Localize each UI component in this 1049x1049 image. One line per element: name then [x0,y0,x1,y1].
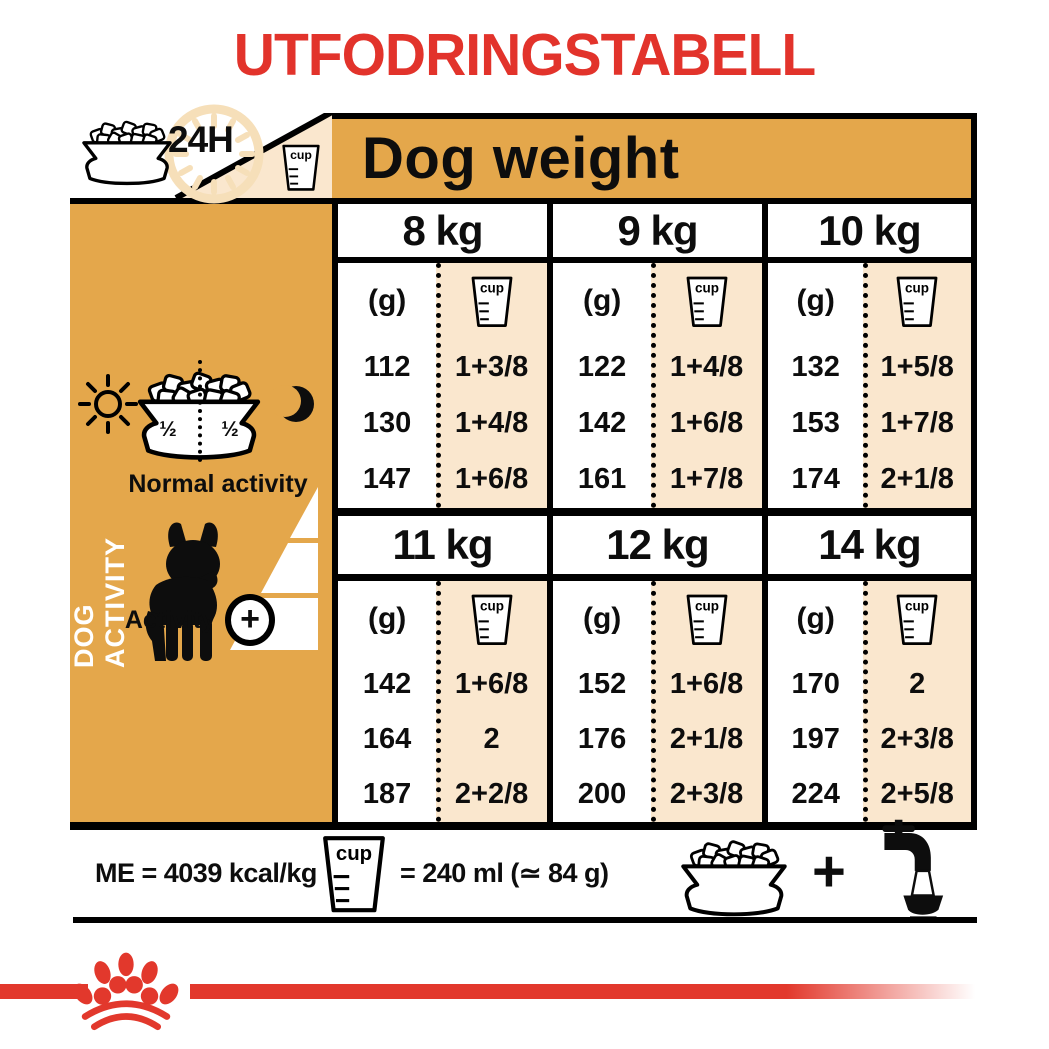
brand-stripe-right [190,984,975,999]
moon-icon [272,382,316,426]
cups-value: 1+6/8 [436,452,547,508]
cups-value: 2+5/8 [863,767,971,822]
royal-canin-crown-paw-logo [68,948,184,1038]
grams-value: 152 [553,657,651,712]
dog-silhouette-icon [130,517,250,665]
water-tap-icon [856,818,946,920]
measuring-cup-icon: cup [469,590,515,648]
grams-value: 161 [553,452,651,508]
hours-badge: 24H [168,119,233,161]
cups-value: 1+3/8 [436,339,547,395]
sun-icon [78,374,138,434]
cup-icon-label: cup [695,280,719,295]
page-title: UTFODRINGSTABELL [0,21,1049,90]
bowl-half-right-label: ½ [208,418,252,442]
cup-icon-label: cup [480,280,504,295]
cups-value: 2+3/8 [651,767,762,822]
feeding-table-page: UTFODRINGSTABELL [0,0,1049,1049]
grams-value: 187 [338,767,436,822]
cup-icon-label: cup [695,598,719,613]
weight-header: 8 kg [338,204,547,263]
grams-header: (g) [768,581,863,657]
grams-value: 142 [553,395,651,451]
cup-icon-label: cup [905,280,929,295]
weight-header: 14 kg [768,516,971,581]
measuring-cup-icon: cup [280,139,322,195]
measuring-cup-icon: cup [894,272,940,330]
plus-sign: + [812,838,846,905]
measuring-cup-icon: cup [469,272,515,330]
grams-value: 197 [768,712,863,767]
cups-value: 1+6/8 [436,657,547,712]
grams-value: 174 [768,452,863,508]
cups-value: 1+6/8 [651,395,762,451]
bowl-half-left-label: ½ [146,418,190,442]
weight-header: 11 kg [338,516,547,581]
feeding-table: 24H cup Dog weight ½ ½ [70,113,977,830]
measuring-cup-icon: cup [684,272,730,330]
grid-column-2: 9 kg (g) cup 122 1+4/8 142 1+6/8 161 1+ [547,204,762,822]
grams-value: 132 [768,339,863,395]
cups-value: 2+3/8 [863,712,971,767]
cups-value: 2 [436,712,547,767]
grid-column-1: 8 kg (g) cup 112 1+3/8 130 1+4/8 147 1+ [332,204,547,822]
data-block-8kg: (g) cup 112 1+3/8 130 1+4/8 147 1+6/8 [338,263,547,516]
cups-value: 1+4/8 [436,395,547,451]
measuring-cup-icon: cup [894,590,940,648]
cup-equivalence-text: = 240 ml (≃ 84 g) [400,858,608,889]
food-bowl-icon-footer [658,834,810,918]
grams-value: 142 [338,657,436,712]
table-corner: 24H cup [70,113,332,204]
weight-header: 9 kg [553,204,762,263]
data-block-9kg: (g) cup 122 1+4/8 142 1+6/8 161 1+7/8 [553,263,762,516]
grams-value: 224 [768,767,863,822]
cup-icon-label: cup [290,148,312,162]
grams-header: (g) [338,581,436,657]
grams-header: (g) [338,263,436,339]
grams-value: 153 [768,395,863,451]
data-block-11kg: (g) cup 142 1+6/8 164 2 187 2+2/8 [338,581,547,822]
grams-value: 176 [553,712,651,767]
me-kcal-text: ME = 4039 kcal/kg [95,858,317,889]
weight-grid: 8 kg (g) cup 112 1+3/8 130 1+4/8 147 1+ [332,204,977,830]
cups-value: 1+7/8 [651,452,762,508]
cup-icon-label: cup [336,843,372,865]
activity-label: Activity [110,606,230,635]
grid-column-3: 10 kg (g) cup 132 1+5/8 153 1+7/8 174 2 [762,204,977,822]
food-bowl-icon [78,115,176,187]
grams-header: (g) [553,263,651,339]
weight-header: 10 kg [768,204,971,263]
weight-header: 12 kg [553,516,762,581]
grams-value: 147 [338,452,436,508]
footer-divider-line [73,917,977,923]
data-block-12kg: (g) cup 152 1+6/8 176 2+1/8 200 2+3/8 [553,581,762,822]
data-block-14kg: (g) cup 170 2 197 2+3/8 224 2+5/8 [768,581,971,822]
grams-value: 122 [553,339,651,395]
bowl-split-dotted-line [198,360,202,462]
grams-value: 164 [338,712,436,767]
grams-value: 200 [553,767,651,822]
data-block-10kg: (g) cup 132 1+5/8 153 1+7/8 174 2+1/8 [768,263,971,516]
grams-header: (g) [768,263,863,339]
cup-icon-label: cup [905,598,929,613]
dog-weight-header: Dog weight [332,113,977,204]
dog-activity-sidebar: ½ ½ DOG ACTIVITY Normal activity [70,204,332,830]
grams-header: (g) [553,581,651,657]
grams-value: 130 [338,395,436,451]
measuring-cup-icon: cup [684,590,730,648]
cups-value: 1+4/8 [651,339,762,395]
grams-value: 170 [768,657,863,712]
cups-value: 2+1/8 [651,712,762,767]
cups-value: 2+2/8 [436,767,547,822]
cups-value: 2+1/8 [863,452,971,508]
cups-value: 2 [863,657,971,712]
grams-value: 112 [338,339,436,395]
measuring-cup-icon-large: cup [316,831,392,915]
activity-plus-icon: + [225,594,275,646]
cup-icon-label: cup [480,598,504,613]
cups-value: 1+6/8 [651,657,762,712]
cups-value: 1+5/8 [863,339,971,395]
sidebar-vertical-label: DOG ACTIVITY [80,468,120,668]
cups-value: 1+7/8 [863,395,971,451]
